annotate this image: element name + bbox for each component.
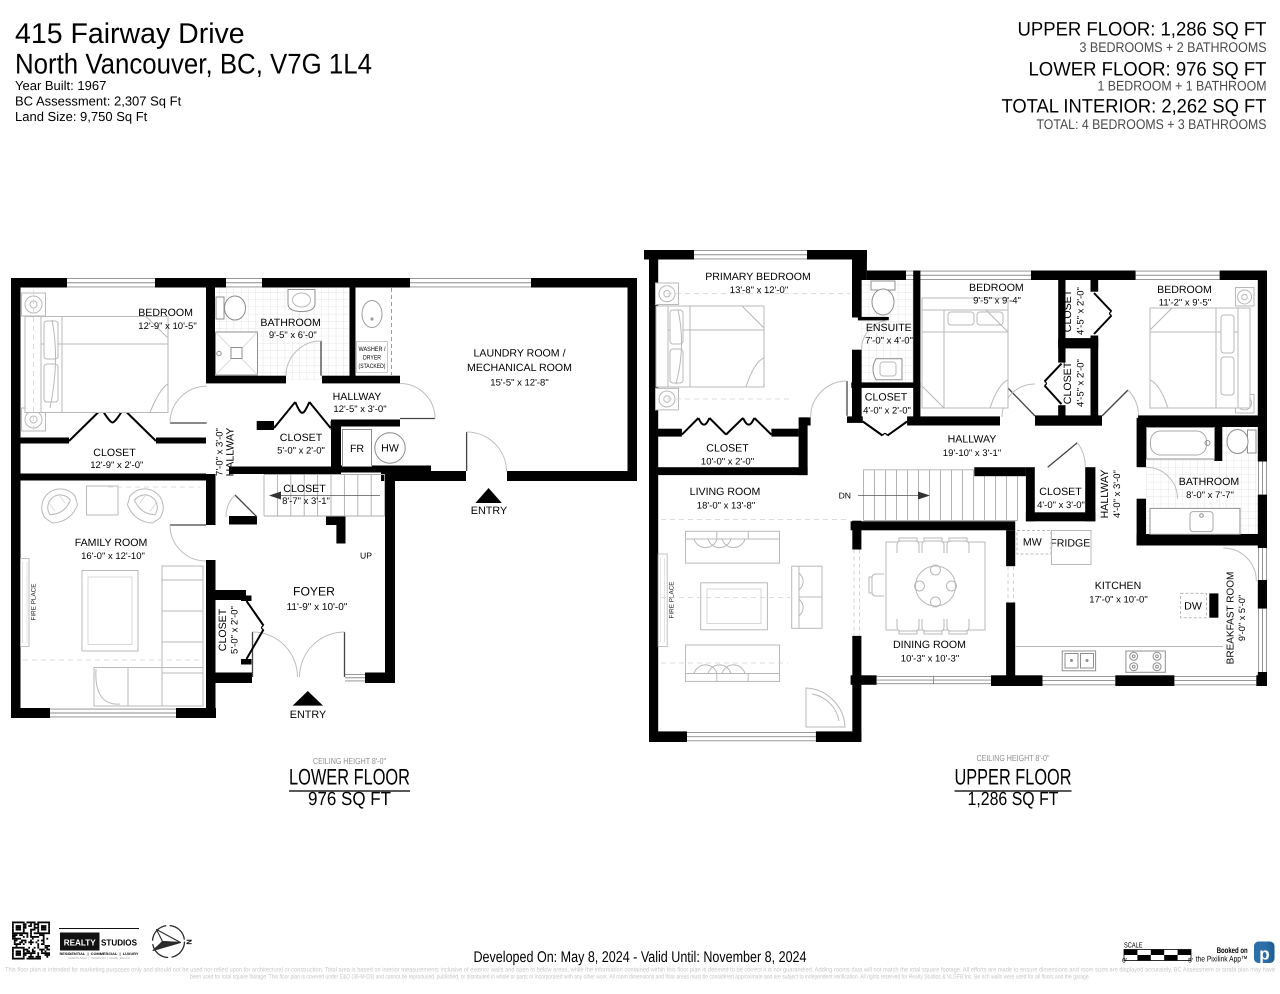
- svg-text:CLOSET: CLOSET: [865, 392, 908, 404]
- svg-text:11'-2" x 9'-5": 11'-2" x 9'-5": [1159, 298, 1211, 309]
- svg-text:976 SQ FT: 976 SQ FT: [308, 789, 391, 810]
- svg-text:FAMILY ROOM: FAMILY ROOM: [75, 537, 148, 549]
- svg-text:Developed On: May 8, 2024 - Va: Developed On: May 8, 2024 - Valid Until:…: [474, 949, 807, 966]
- svg-text:3 BEDROOMS + 2 BATHROOMS: 3 BEDROOMS + 2 BATHROOMS: [1080, 39, 1267, 55]
- svg-text:FIRE PLACE: FIRE PLACE: [31, 583, 38, 620]
- svg-text:BC Assessment: 2,307 Sq Ft: BC Assessment: 2,307 Sq Ft: [15, 94, 182, 109]
- svg-text:HALLWAY: HALLWAY: [948, 434, 997, 446]
- svg-text:TOTAL: 4 BEDROOMS + 3 BATHROOM: TOTAL: 4 BEDROOMS + 3 BATHROOMS: [1037, 116, 1267, 132]
- svg-text:0': 0': [1122, 958, 1127, 965]
- svg-text:REALTY: REALTY: [64, 938, 96, 948]
- svg-text:CLOSET: CLOSET: [93, 447, 136, 459]
- svg-text:4'-0" x 2'-0": 4'-0" x 2'-0": [863, 406, 911, 417]
- svg-text:16'-0" x 12'-10": 16'-0" x 12'-10": [81, 551, 145, 562]
- svg-text:BREAKFAST ROOM: BREAKFAST ROOM: [1226, 572, 1237, 665]
- svg-text:CLOSET: CLOSET: [283, 483, 326, 495]
- svg-text:LAUNDRY ROOM /: LAUNDRY ROOM /: [473, 348, 565, 360]
- svg-text:PRIMARY BEDROOM: PRIMARY BEDROOM: [705, 271, 811, 283]
- svg-text:1 BEDROOM + 1 BATHROOM: 1 BEDROOM + 1 BATHROOM: [1098, 78, 1267, 94]
- svg-text:This floor plan is intended fo: This floor plan is intended for marketin…: [5, 967, 1276, 974]
- svg-text:4'-0" x 3'-0": 4'-0" x 3'-0": [1112, 470, 1123, 518]
- svg-text:5'-0" x 2'-0": 5'-0" x 2'-0": [230, 606, 241, 654]
- svg-text:12'-5" x 3'-0": 12'-5" x 3'-0": [333, 404, 386, 415]
- svg-text:CEILING HEIGHT 8'-0": CEILING HEIGHT 8'-0": [977, 753, 1050, 763]
- svg-text:Year Built: 1967: Year Built: 1967: [15, 78, 106, 93]
- svg-text:CLOSET: CLOSET: [280, 432, 323, 444]
- svg-text:North Vancouver, BC, V7G 1L4: North Vancouver, BC, V7G 1L4: [15, 49, 372, 81]
- svg-text:ENTRY: ENTRY: [290, 709, 326, 721]
- svg-text:DINING ROOM: DINING ROOM: [893, 639, 966, 651]
- svg-text:RESIDENTIAL | COMMERCIAL |: RESIDENTIAL | COMMERCIAL | LUXURY: [60, 952, 139, 956]
- svg-text:8'-0" x 7'-7": 8'-0" x 7'-7": [1186, 490, 1234, 501]
- svg-text:11'-9" x 10'-0": 11'-9" x 10'-0": [287, 602, 348, 613]
- svg-text:TOTAL INTERIOR: 2,262 SQ FT: TOTAL INTERIOR: 2,262 SQ FT: [1002, 96, 1267, 118]
- svg-text:FOYER: FOYER: [293, 585, 335, 599]
- svg-text:9'-0" x 5'-0": 9'-0" x 5'-0": [1237, 595, 1247, 641]
- svg-text:(STACKED): (STACKED): [359, 363, 386, 370]
- svg-text:FR: FR: [350, 443, 364, 455]
- svg-text:KITCHEN: KITCHEN: [1095, 580, 1142, 592]
- svg-text:7'-0" x 4'-0": 7'-0" x 4'-0": [865, 336, 913, 347]
- svg-text:MECHANICAL ROOM: MECHANICAL ROOM: [467, 362, 572, 374]
- svg-text:ENSUITE: ENSUITE: [866, 322, 912, 334]
- svg-text:8'-7" x 3'-1": 8'-7" x 3'-1": [282, 496, 330, 507]
- svg-text:18'-0" x 13'-8": 18'-0" x 13'-8": [697, 501, 755, 512]
- svg-text:HALLWAY: HALLWAY: [1099, 470, 1111, 519]
- svg-text:UPPER FLOOR: 1,286 SQ FT: UPPER FLOOR: 1,286 SQ FT: [1018, 19, 1267, 41]
- svg-text:415 Fairway Drive: 415 Fairway Drive: [15, 18, 245, 50]
- svg-text:FRIDGE: FRIDGE: [1050, 538, 1090, 550]
- svg-text:12'-9" x 10'-5": 12'-9" x 10'-5": [138, 321, 196, 332]
- svg-text:9'-5" x 9'-4": 9'-5" x 9'-4": [973, 296, 1021, 307]
- svg-text:DRYER: DRYER: [363, 354, 381, 361]
- svg-text:CLOSET: CLOSET: [706, 443, 749, 455]
- svg-text:CLOSET: CLOSET: [1039, 486, 1082, 498]
- svg-text:9'-5" x 6'-0": 9'-5" x 6'-0": [269, 330, 317, 341]
- svg-text:HALLWAY: HALLWAY: [225, 428, 237, 477]
- svg-text:LIVING ROOM: LIVING ROOM: [690, 486, 761, 498]
- svg-text:p: p: [1259, 945, 1269, 964]
- svg-text:BEDROOM: BEDROOM: [969, 282, 1024, 294]
- svg-text:the Pixilink App™: the Pixilink App™: [1196, 955, 1248, 964]
- svg-text:SCALE: SCALE: [1124, 941, 1143, 950]
- svg-text:HW: HW: [381, 443, 399, 455]
- svg-text:4'-0" x 3'-0": 4'-0" x 3'-0": [1037, 500, 1085, 511]
- svg-text:BATHROOM: BATHROOM: [1179, 476, 1239, 488]
- svg-text:HALLWAY: HALLWAY: [333, 391, 382, 403]
- svg-text:BEDROOM: BEDROOM: [1157, 284, 1212, 296]
- svg-text:UPPER FLOOR: UPPER FLOOR: [955, 765, 1072, 790]
- svg-text:Land Size: 9,750 Sq Ft: Land Size: 9,750 Sq Ft: [15, 109, 148, 124]
- svg-text:DN: DN: [839, 491, 851, 501]
- svg-text:STUDIOS: STUDIOS: [101, 938, 137, 948]
- svg-text:13'-8" x 12'-0": 13'-8" x 12'-0": [730, 285, 788, 296]
- svg-text:WASHER /: WASHER /: [359, 346, 386, 353]
- svg-text:5': 5': [1188, 958, 1193, 965]
- svg-text:15'-5" x 12'-8": 15'-5" x 12'-8": [490, 378, 548, 389]
- svg-text:DW: DW: [1184, 601, 1202, 613]
- svg-text:LOWER FLOOR: LOWER FLOOR: [289, 765, 410, 790]
- svg-text:4'-5" x 2'-0": 4'-5" x 2'-0": [1076, 287, 1087, 335]
- svg-text:FIRE PLACE: FIRE PLACE: [669, 581, 676, 618]
- svg-text:VANCOUVER | TORONTO | MIAM: VANCOUVER | TORONTO | MIAMI BEACH: [68, 957, 130, 960]
- svg-text:ENTRY: ENTRY: [471, 505, 507, 517]
- svg-text:UP: UP: [360, 551, 372, 561]
- svg-text:5'-0" x 2'-0": 5'-0" x 2'-0": [277, 446, 325, 457]
- svg-text:1,286 SQ FT: 1,286 SQ FT: [968, 789, 1059, 810]
- svg-text:CLOSET: CLOSET: [1062, 361, 1074, 404]
- svg-text:BEDROOM: BEDROOM: [138, 307, 193, 319]
- svg-text:10'-3" x 10'-3": 10'-3" x 10'-3": [901, 654, 959, 665]
- svg-text:N: N: [185, 939, 194, 944]
- svg-text:10'-0" x 2'-0": 10'-0" x 2'-0": [701, 457, 754, 468]
- svg-text:BATHROOM: BATHROOM: [260, 317, 320, 329]
- svg-text:CLOSET: CLOSET: [1062, 289, 1074, 332]
- svg-text:17'-0" x 10'-0": 17'-0" x 10'-0": [1089, 595, 1147, 606]
- svg-text:12'-9" x 2'-0": 12'-9" x 2'-0": [90, 460, 143, 471]
- svg-text:MW: MW: [1023, 537, 1042, 549]
- svg-text:CLOSET: CLOSET: [217, 608, 229, 651]
- svg-text:been used for total square foo: been used for total square footage. This…: [190, 974, 1090, 981]
- svg-text:19'-10" x 3'-1": 19'-10" x 3'-1": [943, 448, 1001, 459]
- svg-text:4'-5" x 2'-0": 4'-5" x 2'-0": [1076, 359, 1087, 407]
